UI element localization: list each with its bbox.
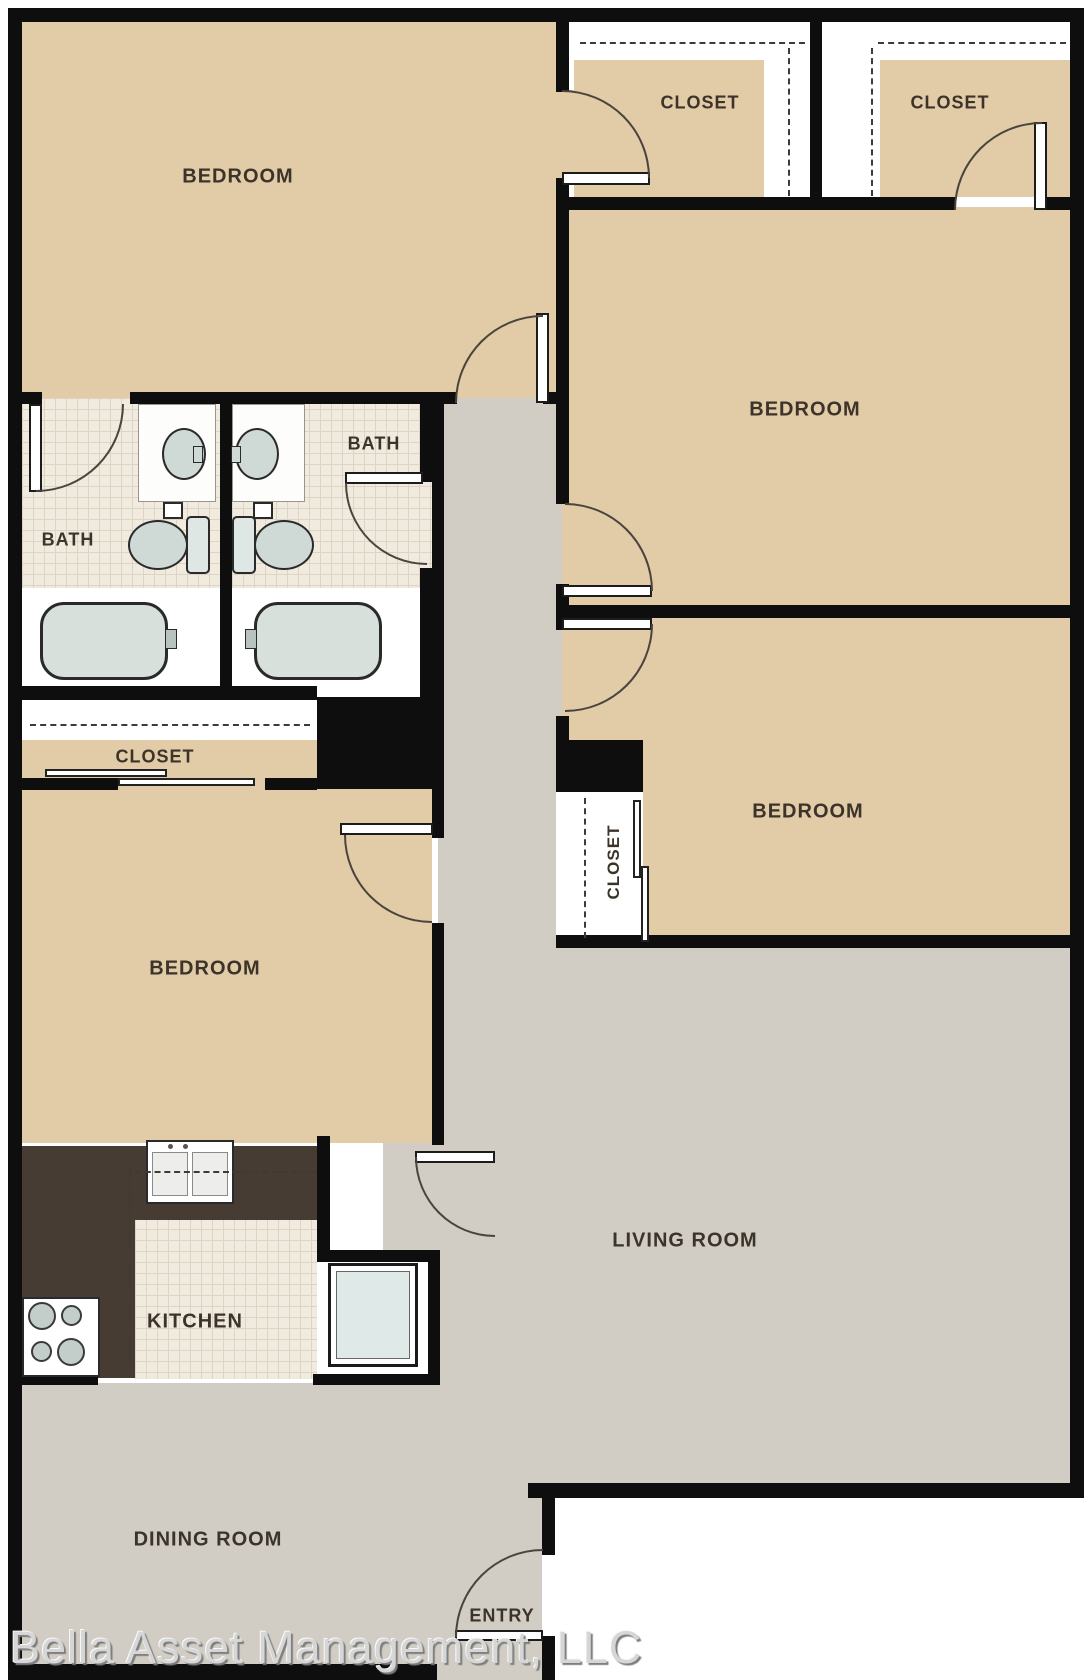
closet-strip-bg: [22, 694, 317, 742]
closet-top-left-label: CLOSET: [660, 93, 739, 114]
wall-closet2-bottom-left: [822, 197, 955, 210]
hallway-floor: [438, 398, 562, 948]
closet4-rod-dashed-line: [584, 798, 586, 938]
wall-closet4-top: [556, 740, 643, 792]
dining-room-label: DINING ROOM: [134, 1529, 283, 1552]
wall-bedroom1-right-lower: [556, 178, 569, 404]
pantry-floor: [330, 1143, 383, 1251]
kitchen-faucet-icon-2: [183, 1144, 188, 1149]
kitchen-tile: [135, 1218, 330, 1379]
bath2-tub-faucet-icon: [245, 629, 257, 649]
wall-outer-right: [1070, 8, 1084, 1498]
bath2-toilet-valve: [253, 502, 273, 519]
watermark-text: Bella Asset Management, LLC: [10, 1622, 642, 1674]
wall-bath2-right-lower: [420, 568, 432, 698]
wall-bedroom3-top-a: [22, 778, 118, 790]
wall-bedroom3-top-b: [265, 778, 317, 790]
bath1-toilet-valve: [163, 502, 183, 519]
closet3-rod-dashed-line: [30, 724, 310, 726]
wall-pantry-bottom: [317, 1250, 440, 1262]
wall-mass-center: [317, 697, 444, 789]
kitchen-cabinet-dashed-line-h: [135, 1171, 317, 1173]
wall-closet1-bottom: [561, 197, 810, 210]
kitchen-cabinet-dashed-line-v: [129, 1171, 131, 1371]
closet2-side-dashed-line: [871, 48, 873, 196]
stove-burner-icon-1: [28, 1302, 56, 1330]
wall-bedroom1-bottom-a: [22, 392, 42, 404]
bath1-toilet-tank: [186, 516, 210, 574]
closet1-side-dashed-line: [788, 48, 790, 196]
wall-bedrooms-divider: [569, 605, 1084, 618]
bedroom-upper-right-label: BEDROOM: [749, 399, 860, 422]
wall-hall-left-lower: [432, 923, 444, 1145]
bath1-toilet-bowl: [128, 520, 188, 570]
bedroom-middle-right-label: BEDROOM: [752, 801, 863, 824]
wall-entry-step-upper: [542, 1497, 555, 1555]
wall-closet-divider: [810, 8, 822, 210]
wall-living-bottom: [528, 1483, 1084, 1498]
wall-outer-left: [8, 8, 22, 1680]
bath-left-label: BATH: [42, 530, 95, 551]
closet-strip-label: CLOSET: [115, 747, 194, 768]
living-room-label: LIVING ROOM: [612, 1230, 757, 1253]
closet4-sliding-door-2: [641, 866, 649, 942]
wall-kitchen-bottom-right: [313, 1374, 440, 1385]
stove-burner-icon-2: [61, 1305, 82, 1326]
closet3-sliding-door-2: [118, 778, 255, 786]
bath1-bathtub: [40, 602, 168, 680]
wall-hall-right-a: [556, 404, 569, 504]
wall-hall-right-c: [556, 716, 569, 742]
bath2-toilet-tank: [232, 516, 256, 574]
bedroom-closet-label: CLOSET: [604, 825, 624, 900]
bedroom-closet-floor: [556, 790, 643, 948]
bath-right-label: BATH: [348, 434, 401, 455]
closet3-sliding-door-1: [45, 769, 167, 777]
stove-burner-icon-4: [57, 1338, 85, 1366]
wall-hall-left-upper: [432, 404, 444, 838]
closet4-sliding-door-1: [633, 800, 641, 878]
wall-bedroom4-bottom: [556, 935, 1084, 948]
kitchen-sink-basin-right: [192, 1152, 228, 1196]
bedroom-top-left-label: BEDROOM: [182, 166, 293, 189]
bedroom3-door-leaf: [340, 823, 433, 835]
bath2-sink: [235, 428, 279, 480]
kitchen-sink-basin-left: [152, 1152, 188, 1196]
wall-bath2-right-upper: [420, 404, 432, 482]
wall-pantry-left: [317, 1136, 330, 1257]
wall-bedroom1-bottom-b: [130, 392, 457, 404]
refrigerator-interior: [336, 1271, 410, 1359]
bath2-bathtub: [254, 602, 382, 680]
kitchen-label: KITCHEN: [147, 1311, 243, 1334]
bath2-toilet-bowl: [254, 520, 314, 570]
wall-fridge-right: [428, 1257, 440, 1383]
wall-bath-bottom: [22, 686, 317, 700]
bedroom-lower-left-label: BEDROOM: [149, 958, 260, 981]
bath1-sink-faucet-icon: [193, 446, 203, 463]
closet1-rod-dashed-line: [580, 42, 805, 44]
wall-bedroom1-right-upper: [556, 8, 569, 92]
bath1-tub-faucet-icon: [165, 629, 177, 649]
bath2-sink-faucet-icon: [231, 446, 241, 463]
closet2-rod-dashed-line: [878, 42, 1066, 44]
wall-outer-top: [8, 8, 1084, 22]
floor-plan: BEDROOM CLOSET CLOSET BEDROOM BATH BATH …: [0, 0, 1092, 1680]
stove-burner-icon-3: [31, 1341, 52, 1362]
closet-top-right-label: CLOSET: [910, 93, 989, 114]
kitchen-faucet-icon: [168, 1144, 173, 1149]
